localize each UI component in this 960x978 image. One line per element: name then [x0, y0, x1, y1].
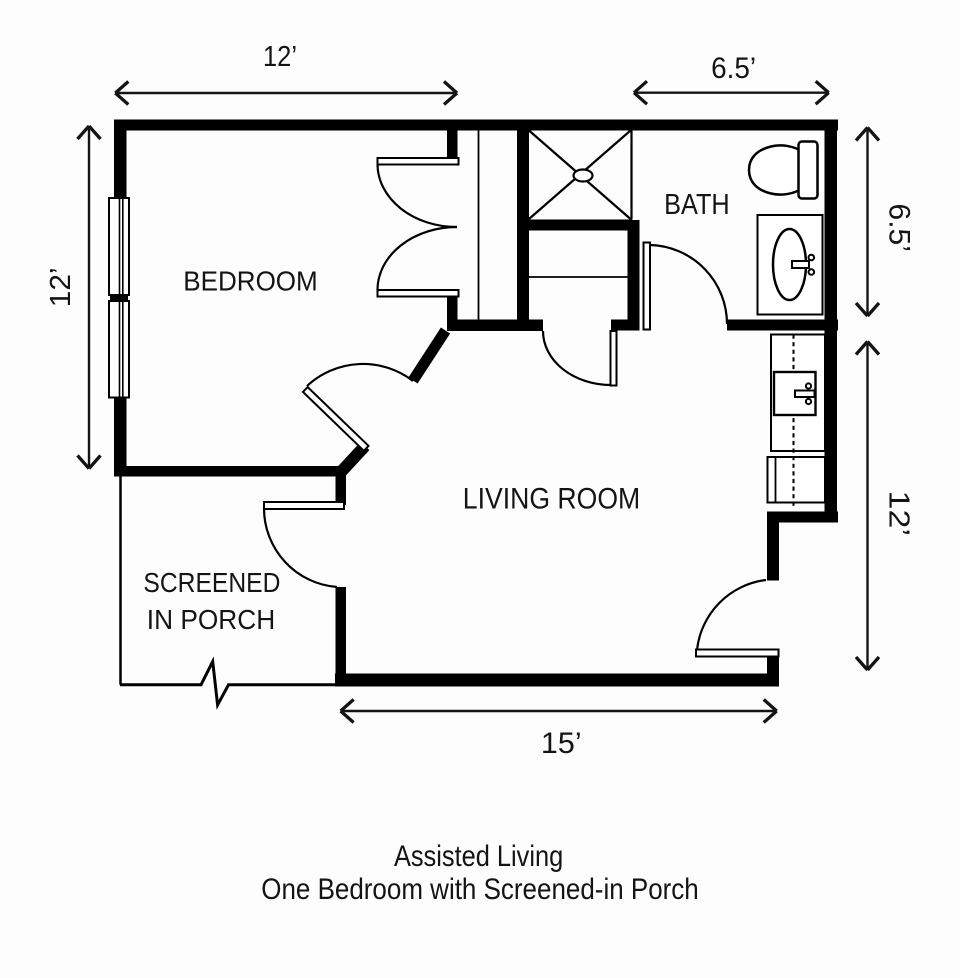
svg-text:BEDROOM: BEDROOM: [183, 266, 318, 297]
svg-text:Assisted Living: Assisted Living: [394, 840, 563, 873]
svg-text:12’: 12’: [882, 491, 914, 536]
svg-text:12’: 12’: [45, 267, 77, 307]
svg-text:IN PORCH: IN PORCH: [147, 604, 275, 635]
svg-text:One Bedroom with Screened-in P: One Bedroom with Screened-in Porch: [261, 873, 699, 906]
svg-text:6.5’: 6.5’: [711, 52, 756, 85]
svg-text:SCREENED: SCREENED: [143, 567, 280, 598]
svg-text:12’: 12’: [263, 41, 297, 73]
svg-text:BATH: BATH: [664, 189, 730, 221]
svg-text:6.5’: 6.5’: [882, 204, 915, 252]
svg-text:LIVING ROOM: LIVING ROOM: [463, 482, 640, 515]
svg-text:15’: 15’: [541, 727, 582, 760]
